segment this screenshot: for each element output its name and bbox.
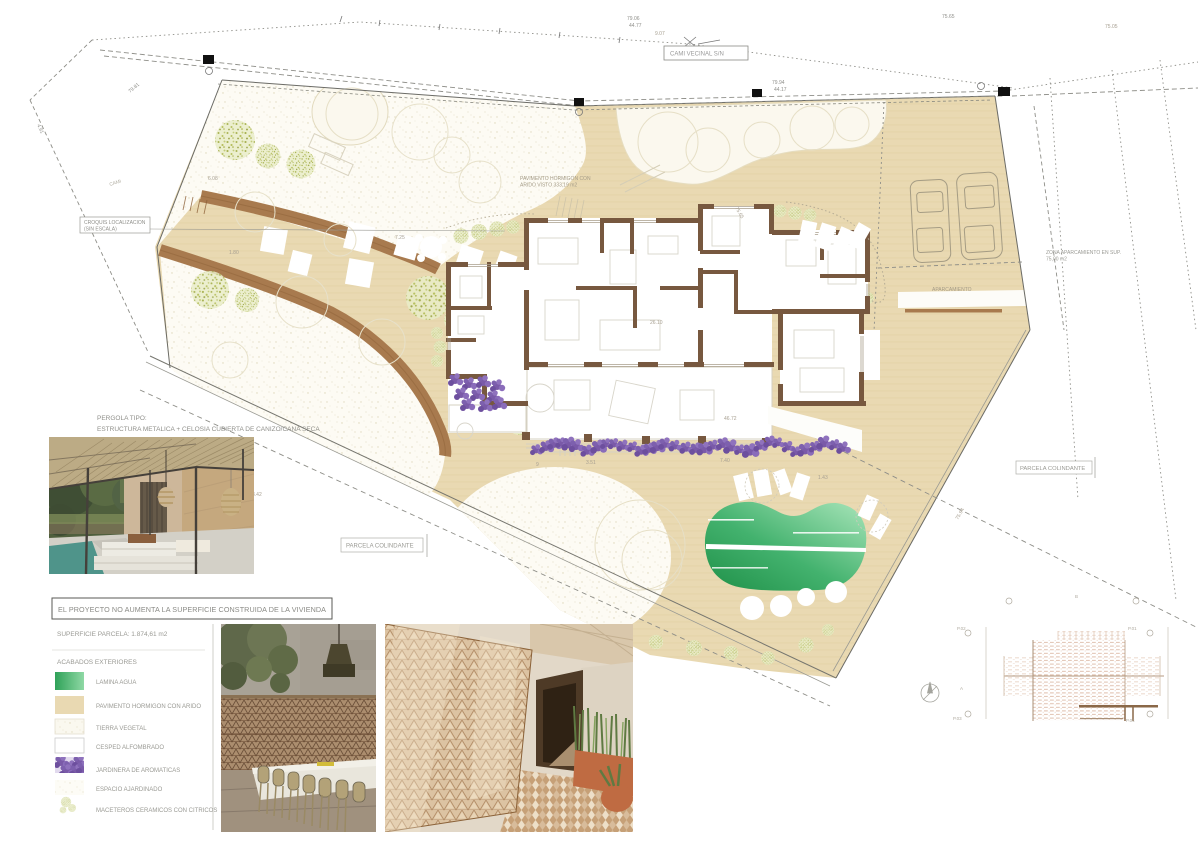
svg-text:P.01: P.01 <box>1128 626 1137 631</box>
svg-text:9: 9 <box>536 462 539 468</box>
svg-text:PARCELA COLINDANTE: PARCELA COLINDANTE <box>346 544 414 550</box>
svg-text:7.40: 7.40 <box>720 458 730 464</box>
svg-text:TIERRA VEGETAL: TIERRA VEGETAL <box>96 726 147 732</box>
svg-text:PARCELA COLINDANTE: PARCELA COLINDANTE <box>1020 466 1085 472</box>
svg-text:CROQUIS LOCALIZACION: CROQUIS LOCALIZACION <box>84 220 146 226</box>
svg-text:ESTRUCTURA METALICA + CELOSIA: ESTRUCTURA METALICA + CELOSIA CUBIERTA D… <box>97 426 320 433</box>
svg-text:ZONA APARCAMIENTO EN SUP.: ZONA APARCAMIENTO EN SUP. <box>1046 250 1121 256</box>
svg-text:79.94: 79.94 <box>772 80 785 86</box>
svg-text:3.51: 3.51 <box>586 460 596 466</box>
svg-text:JARDINERA DE AROMATICAS: JARDINERA DE AROMATICAS <box>96 768 180 774</box>
svg-text:APARCAMIENTO: APARCAMIENTO <box>932 287 972 293</box>
svg-text:MACETEROS CERAMICOS CON CITRIC: MACETEROS CERAMICOS CON CITRICOS <box>96 808 217 814</box>
svg-text:LAMINA AGUA: LAMINA AGUA <box>96 680 136 686</box>
svg-text:EL PROYECTO NO AUMENTA LA SUPE: EL PROYECTO NO AUMENTA LA SUPERFICIE CON… <box>58 605 326 614</box>
svg-text:(SIN ESCALA): (SIN ESCALA) <box>84 227 117 233</box>
svg-text:PAVIMENTO HORMIGON CON: PAVIMENTO HORMIGON CON <box>520 176 591 182</box>
svg-text:7.25: 7.25 <box>395 235 405 241</box>
svg-text:P.02: P.02 <box>957 626 966 631</box>
svg-text:75.05: 75.05 <box>1105 24 1118 30</box>
svg-text:75.65: 75.65 <box>942 14 955 20</box>
svg-text:9.07: 9.07 <box>655 31 665 37</box>
svg-text:B: B <box>1075 594 1078 599</box>
svg-text:P.04: P.04 <box>1126 718 1135 723</box>
svg-text:1.43: 1.43 <box>818 475 828 481</box>
svg-text:6.08: 6.08 <box>208 176 218 182</box>
svg-text:SUPERFICIE PARCELA: 1.874,61: SUPERFICIE PARCELA: 1.874,61 m2 <box>57 631 168 638</box>
svg-text:ESPACIO AJARDINADO: ESPACIO AJARDINADO <box>96 787 163 793</box>
svg-text:A: A <box>960 686 963 691</box>
svg-text:75,00 m2: 75,00 m2 <box>1046 257 1067 263</box>
svg-text:79.06: 79.06 <box>627 16 640 22</box>
svg-text:PERGOLA TIPO:: PERGOLA TIPO: <box>97 415 147 422</box>
svg-text:26.10: 26.10 <box>650 320 663 326</box>
svg-text:P.03: P.03 <box>953 716 962 721</box>
svg-text:ARIDO VISTO 333,19 m2: ARIDO VISTO 333,19 m2 <box>520 183 577 189</box>
svg-text:CAMI VECINAL S/N: CAMI VECINAL S/N <box>670 52 724 58</box>
svg-text:1.80: 1.80 <box>229 250 239 256</box>
svg-text:PAVIMENTO HORMIGON CON ARIDO: PAVIMENTO HORMIGON CON ARIDO <box>96 704 201 710</box>
svg-text:44.77: 44.77 <box>629 23 642 29</box>
svg-text:ACABADOS EXTERIORES: ACABADOS EXTERIORES <box>57 659 137 666</box>
svg-text:44.17: 44.17 <box>774 87 787 93</box>
svg-text:CESPED ALFOMBRADO: CESPED ALFOMBRADO <box>96 745 164 751</box>
svg-text:46.72: 46.72 <box>724 416 737 422</box>
